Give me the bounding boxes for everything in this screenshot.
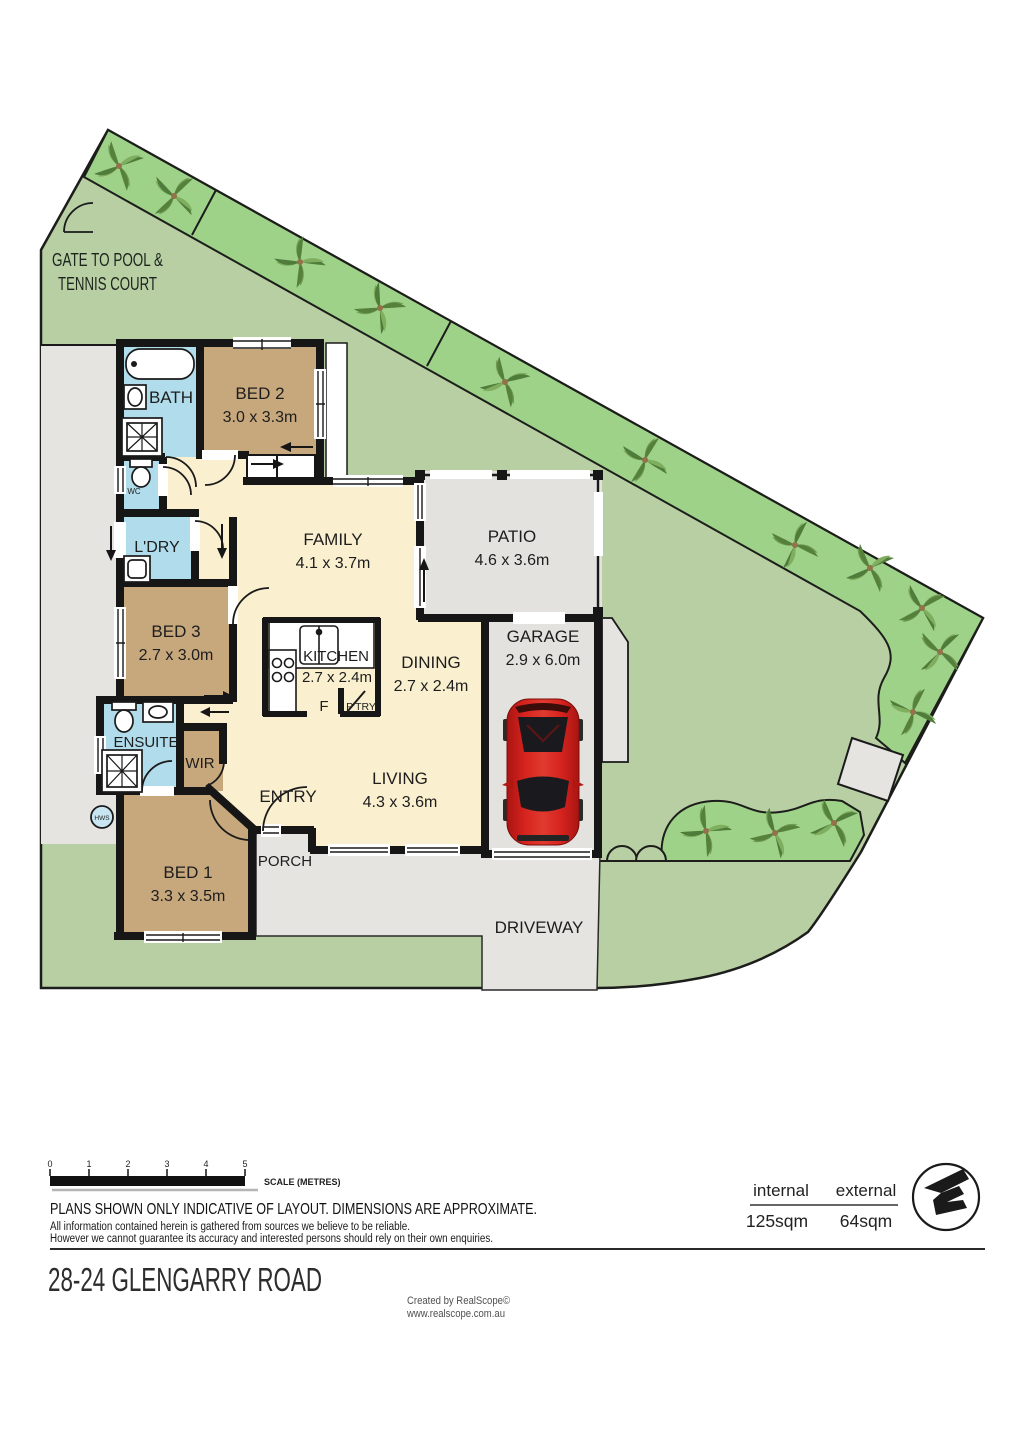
garage-side-slab (602, 618, 628, 762)
room-label-bed2: BED 2 (235, 384, 284, 403)
external-area-label: external (836, 1181, 896, 1200)
patio-post-icon (593, 470, 603, 480)
scale-ticks (50, 1169, 245, 1176)
toilet-icon (132, 467, 150, 487)
room-dims-bed1: 3.3 x 3.5m (151, 888, 226, 905)
internal-area-value: 125sqm (746, 1211, 808, 1231)
basin-icon (149, 706, 167, 718)
room-dims-kitchen: 2.7 x 2.4m (302, 669, 372, 686)
scale-tick-label: 3 (164, 1159, 169, 1169)
room-label-garage: GARAGE (507, 627, 580, 646)
cistern-icon (130, 459, 152, 467)
room-label-entry: ENTRY (259, 787, 316, 806)
scale-caption: SCALE (METRES) (264, 1177, 341, 1187)
gate-note-line1: GATE TO POOL & (52, 250, 163, 270)
room-dims-family: 4.1 x 3.7m (296, 555, 371, 572)
room-dims-dining: 2.7 x 2.4m (394, 678, 469, 695)
gate-note-line2: TENNIS COURT (58, 274, 157, 294)
room-label-family: FAMILY (303, 530, 362, 549)
room-label-porch: PORCH (258, 853, 312, 870)
room-dims-bed2: 3.0 x 3.3m (223, 409, 298, 426)
room-label-living: LIVING (372, 769, 428, 788)
credit-line1: Created by RealScope© (407, 1295, 510, 1307)
room-label-dining: DINING (401, 653, 461, 672)
address-title: 28-24 GLENGARRY ROAD (48, 1261, 322, 1298)
patio-post-icon (415, 470, 425, 480)
scale-bar: 0 1 2 3 4 5 SCALE (METRES) (47, 1159, 340, 1190)
room-label-ensuite: ENSUITE (113, 734, 178, 751)
pantry-label: P'TRY (346, 701, 376, 713)
room-label-bed1: BED 1 (163, 863, 212, 882)
tap-icon (131, 361, 137, 367)
room-label-ldry: L'DRY (134, 539, 180, 556)
disclaimer-line2: However we cannot guarantee its accuracy… (50, 1233, 493, 1245)
patio-post-icon (593, 607, 603, 617)
external-area-value: 64sqm (840, 1211, 893, 1231)
credit-line2: www.realscope.com.au (406, 1308, 505, 1320)
room-bed3-floor (120, 583, 233, 700)
scale-tick-label: 4 (203, 1159, 208, 1169)
room-label-bath: BATH (149, 388, 193, 407)
tap-icon (317, 630, 322, 635)
fridge-label: F (319, 698, 328, 715)
cistern-icon (112, 702, 136, 710)
room-label-driveway: DRIVEWAY (495, 918, 584, 937)
room-label-wir: WIR (185, 755, 214, 772)
disclaimer-line1: All information contained herein is gath… (50, 1221, 410, 1233)
room-label-bed3: BED 3 (151, 622, 200, 641)
footer: 0 1 2 3 4 5 SCALE (METRES) PLANS SHOWN O… (47, 1159, 985, 1320)
toilet-icon (115, 710, 133, 732)
basin-icon (128, 388, 142, 406)
area-table: internal external 125sqm 64sqm (746, 1181, 898, 1231)
eave-strip (326, 343, 347, 481)
internal-area-label: internal (753, 1181, 809, 1200)
scale-tick-label: 0 (47, 1159, 52, 1169)
floorplan-canvas: HWS GATE TO POOL & TENNIS COURT BATH WC … (0, 0, 1024, 1448)
disclaimer-headline: PLANS SHOWN ONLY INDICATIVE OF LAYOUT. D… (50, 1201, 537, 1218)
scale-bar-fill (50, 1176, 245, 1186)
room-label-patio: PATIO (488, 527, 537, 546)
room-label-wc: WC (127, 487, 141, 496)
realscope-logo-icon (913, 1164, 979, 1230)
room-label-kitchen: KITCHEN (303, 648, 369, 665)
room-dims-garage: 2.9 x 6.0m (506, 652, 581, 669)
scale-tick-label: 5 (242, 1159, 247, 1169)
scale-tick-label: 1 (86, 1159, 91, 1169)
hot-water-system: HWS (91, 806, 113, 828)
hws-label: HWS (94, 815, 110, 822)
car-icon (502, 699, 584, 845)
room-dims-bed3: 2.7 x 3.0m (139, 647, 214, 664)
room-dims-patio: 4.6 x 3.6m (475, 552, 550, 569)
patio-post-icon (497, 470, 507, 480)
scale-tick-label: 2 (125, 1159, 130, 1169)
room-dims-living: 4.3 x 3.6m (363, 794, 438, 811)
floorplan-page: HWS GATE TO POOL & TENNIS COURT BATH WC … (0, 0, 1024, 1448)
